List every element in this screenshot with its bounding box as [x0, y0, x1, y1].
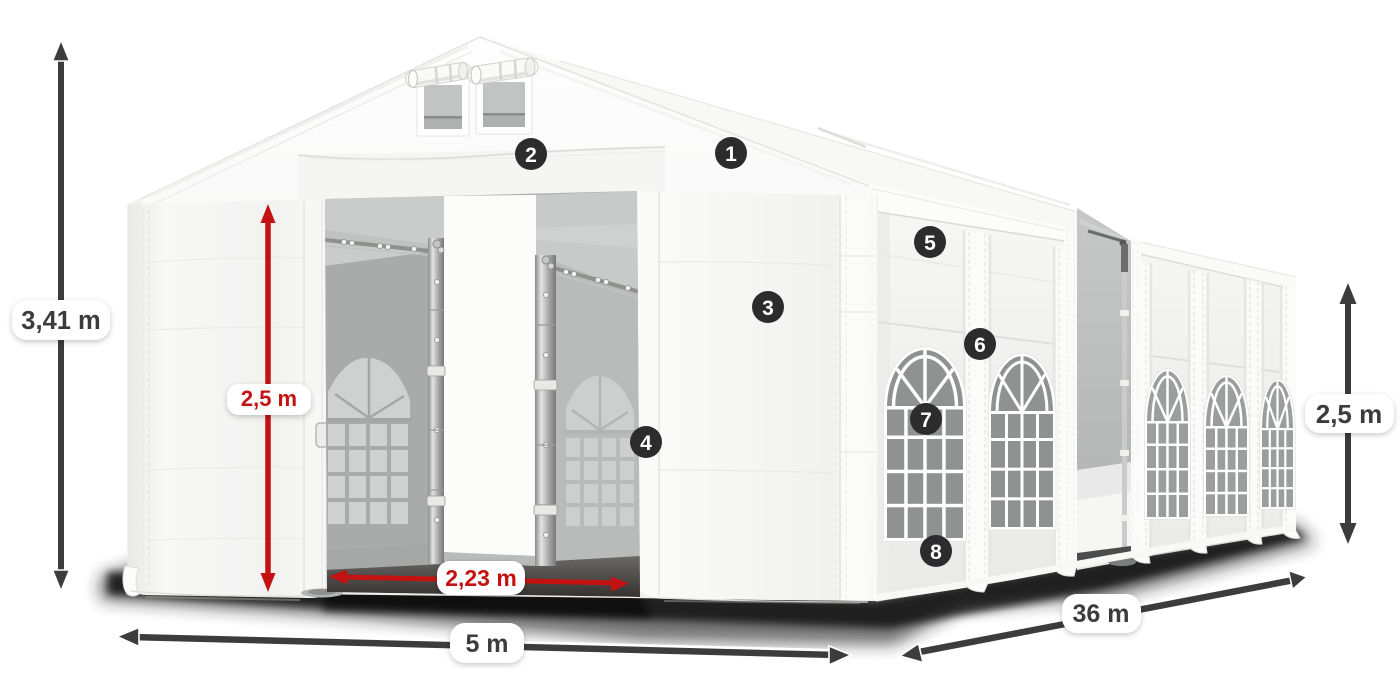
svg-text:5: 5	[924, 232, 936, 255]
svg-text:8: 8	[930, 541, 942, 564]
svg-text:6: 6	[974, 334, 986, 357]
svg-text:2,23 m: 2,23 m	[445, 565, 517, 591]
svg-text:3,41 m: 3,41 m	[21, 307, 100, 335]
svg-text:3: 3	[762, 297, 774, 320]
svg-text:2,5 m: 2,5 m	[1316, 399, 1383, 429]
svg-text:5 m: 5 m	[465, 630, 508, 658]
svg-text:1: 1	[725, 143, 737, 166]
svg-text:4: 4	[640, 432, 652, 455]
svg-text:7: 7	[920, 409, 932, 432]
svg-text:2,5 m: 2,5 m	[241, 386, 297, 411]
svg-text:2: 2	[525, 144, 537, 167]
svg-text:36 m: 36 m	[1073, 600, 1130, 628]
